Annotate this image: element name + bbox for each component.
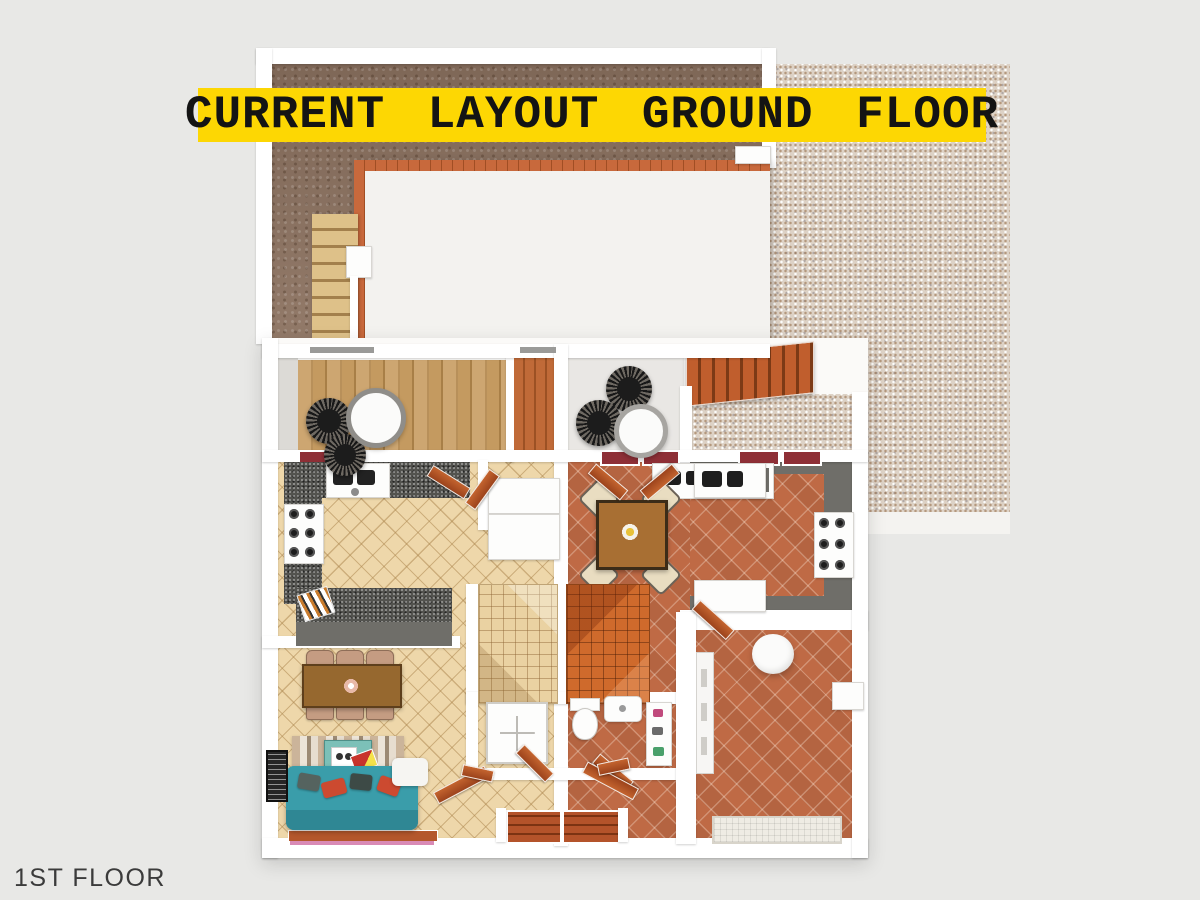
entry-steps (506, 810, 562, 844)
entry-steps (562, 810, 622, 844)
stairwell-left-wall (466, 584, 478, 704)
deck-side-strip (278, 348, 298, 462)
deck-corridor-wall (506, 346, 514, 462)
stove (284, 504, 324, 564)
title-banner-text: CURRENT LAYOUT GROUND FLOOR (185, 89, 999, 141)
bath-bottom-wall (466, 768, 692, 780)
sofa-pillow (320, 777, 347, 799)
deck-table (346, 388, 406, 448)
dining-table (596, 500, 668, 570)
garage-roof (354, 160, 770, 346)
toilet-bowl (572, 708, 598, 740)
sofa-blanket (392, 758, 428, 786)
floor-label: 1ST FLOOR (14, 864, 166, 893)
sink-faucet (351, 488, 359, 496)
kitchen-peninsula-panel (296, 622, 452, 646)
bath-shelf (646, 702, 672, 766)
ceiling-lamp (752, 634, 794, 674)
shelf-item (653, 747, 664, 756)
right-unit-stairs (566, 584, 650, 704)
living-room-window-glass (290, 841, 434, 845)
basin-faucet (619, 705, 626, 712)
wood-stairs-landing (346, 246, 372, 278)
door-handle (701, 703, 707, 721)
terrace-top-wall (256, 48, 770, 64)
shelf-item (652, 727, 663, 735)
wall-shelf (832, 682, 864, 710)
bigroom-left-wall (676, 612, 696, 844)
roof-chimney (735, 146, 771, 164)
right-kitchen-sink-counter (694, 463, 766, 498)
living-table (302, 664, 402, 708)
sofa-pillow (297, 772, 321, 792)
entry-step-sidewall (496, 808, 506, 842)
sink-basin (357, 470, 375, 485)
lintel-landing-door (520, 347, 556, 353)
roof-brick-edge-top (354, 160, 770, 171)
left-entry-corridor (514, 348, 554, 462)
lintel-deck-door (310, 347, 374, 353)
window-sill (782, 450, 822, 466)
door-handle (701, 669, 707, 687)
washbasin (604, 696, 642, 722)
table-flowers (342, 678, 360, 694)
hall-closet-b (488, 514, 560, 560)
door-handle (701, 737, 707, 755)
sofa-pillow (349, 773, 373, 791)
sink-basin (727, 471, 743, 487)
title-banner: CURRENT LAYOUT GROUND FLOOR (198, 88, 986, 142)
centerpiece (621, 523, 639, 541)
left-unit-stairs (478, 584, 558, 704)
wall-art (266, 750, 288, 802)
sink-basin (702, 471, 722, 487)
doormat (712, 816, 842, 844)
right-stove (814, 512, 854, 578)
room-door-panel (696, 652, 714, 774)
tray-cup (336, 753, 343, 760)
floorplan-canvas: CURRENT LAYOUT GROUND FLOOR 1ST FLOOR (0, 0, 1200, 900)
sofa-back (286, 810, 418, 830)
porch-table (614, 404, 668, 458)
entry-step-sidewall (618, 808, 628, 842)
shelf-item (653, 709, 663, 717)
hall-closet-a (488, 478, 560, 514)
